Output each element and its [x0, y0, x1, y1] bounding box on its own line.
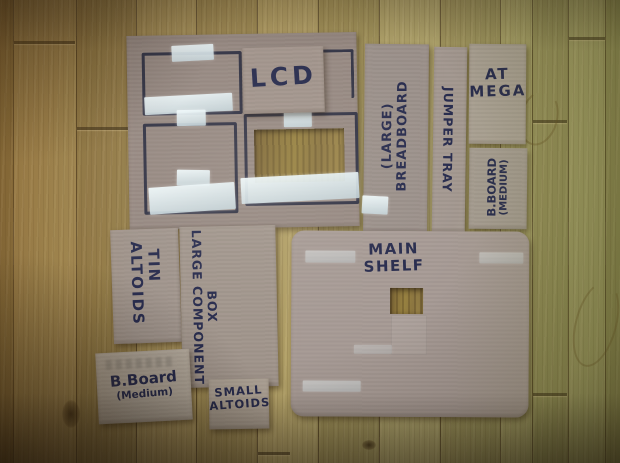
- main-shelf-label: MAIN SHELF: [346, 240, 442, 277]
- piece-b-board-medium-right: B.BOARD (MEDIUM): [469, 148, 528, 230]
- floor-plank: [13, 0, 77, 463]
- small-altoids-label: SMALL ALTOIDS: [208, 383, 270, 414]
- plank-joint: [569, 37, 605, 40]
- piece-altoids-tin: ALTOIDS TIN: [110, 228, 182, 344]
- wood-knot: [362, 440, 376, 450]
- plank-joint: [77, 127, 135, 130]
- plank-joint: [533, 393, 567, 396]
- piece-main-shelf: MAIN SHELF: [291, 230, 530, 417]
- floor-plank: [0, 0, 14, 463]
- large-component-box-label: LARGE COMPONENT BOX: [179, 225, 278, 388]
- tape-strip: [354, 345, 392, 354]
- altoids-tin-label: ALTOIDS TIN: [110, 228, 182, 344]
- photo-cardboard-layout: LCD (LARGE) BREADBOARD JUMPER TRAY AT ME…: [0, 0, 620, 463]
- tape-strip: [171, 44, 214, 62]
- tape-strip: [303, 380, 361, 391]
- plank-joint: [14, 41, 75, 44]
- plank-joint: [258, 452, 290, 455]
- shelf-cutout: [390, 288, 423, 314]
- piece-at-mega: AT MEGA: [469, 44, 527, 144]
- piece-lcd: LCD: [242, 46, 325, 114]
- lcd-label: LCD: [242, 61, 325, 95]
- b-board-medium-bottom-label: B.Board (Medium): [96, 367, 192, 404]
- tape-strip: [177, 110, 206, 127]
- tape-strip: [479, 252, 523, 263]
- piece-small-altoids: SMALL ALTOIDS: [209, 378, 270, 429]
- tape-strip: [305, 250, 355, 262]
- wood-knot: [62, 400, 80, 428]
- piece-large-component-box: LARGE COMPONENT BOX: [179, 225, 278, 388]
- floor-plank: [605, 0, 620, 463]
- tape-strip: [362, 195, 389, 214]
- shelf-flap-outline: [391, 315, 427, 355]
- piece-b-board-medium-bottom: B.Board (Medium): [95, 349, 193, 425]
- at-mega-label: AT MEGA: [469, 65, 527, 101]
- jumper-tray-label: JUMPER TRAY: [432, 47, 468, 232]
- piece-jumper-tray: JUMPER TRAY: [432, 47, 468, 232]
- floor-plank: [568, 0, 606, 463]
- b-board-medium-right-label: B.BOARD (MEDIUM): [485, 147, 511, 227]
